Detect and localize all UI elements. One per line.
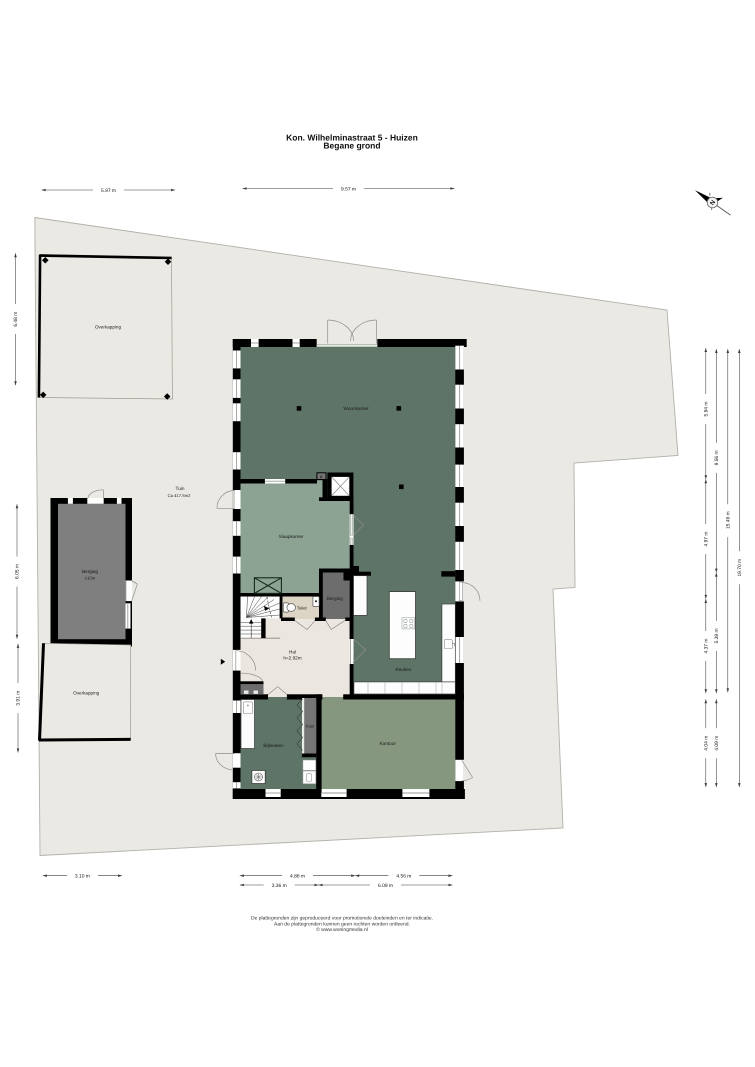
svg-text:Toilet: Toilet [297, 605, 308, 610]
svg-text:Kantoor: Kantoor [379, 741, 396, 746]
svg-text:9.56 m: 9.56 m [714, 450, 720, 465]
svg-text:Woonkamer: Woonkamer [343, 406, 369, 411]
svg-text:Keuken: Keuken [396, 667, 412, 672]
svg-text:9.57 m: 9.57 m [341, 187, 356, 193]
svg-text:Ca 417.5m2: Ca 417.5m2 [168, 493, 191, 498]
svg-text:Slaapkamer: Slaapkamer [278, 534, 303, 539]
svg-text:4.04 m: 4.04 m [704, 736, 710, 751]
svg-text:5.39 m: 5.39 m [714, 628, 720, 643]
svg-text:5.97 m: 5.97 m [101, 188, 116, 194]
svg-text:Bijkeuken: Bijkeuken [263, 743, 284, 748]
svg-text:4.56 m: 4.56 m [396, 874, 411, 880]
svg-text:3.36 m: 3.36 m [272, 883, 287, 889]
svg-text:6.05 m: 6.05 m [15, 564, 21, 579]
svg-text:15.49 m: 15.49 m [726, 511, 732, 529]
svg-text:5.94 m: 5.94 m [704, 402, 710, 417]
svg-text:Hal: Hal [289, 649, 296, 654]
svg-text:4.37 m: 4.37 m [704, 639, 710, 654]
svg-text:Tuin: Tuin [176, 486, 185, 491]
svg-text:Berging: Berging [327, 596, 344, 601]
svg-text:4.97 m: 4.97 m [704, 532, 710, 547]
svg-text:Overkapping: Overkapping [73, 690, 99, 695]
svg-text:6.48 m: 6.48 m [13, 312, 19, 327]
svg-text:© www.woningmedia.nl: © www.woningmedia.nl [316, 927, 368, 933]
svg-text:4.09 m: 4.09 m [714, 736, 720, 751]
svg-text:Begane grond: Begane grond [323, 141, 380, 151]
svg-text:±12m: ±12m [85, 576, 96, 581]
svg-text:Berging: Berging [82, 569, 98, 574]
svg-text:6.09 m: 6.09 m [378, 883, 393, 889]
svg-text:3.10 m: 3.10 m [75, 874, 90, 880]
svg-text:Kast: Kast [306, 724, 315, 729]
svg-text:h=2.92m: h=2.92m [283, 655, 301, 660]
svg-text:4.88 m: 4.88 m [290, 874, 305, 880]
svg-text:19.70 m: 19.70 m [737, 559, 743, 577]
svg-text:3.91 m: 3.91 m [16, 691, 22, 706]
svg-text:Overkapping: Overkapping [95, 324, 121, 329]
